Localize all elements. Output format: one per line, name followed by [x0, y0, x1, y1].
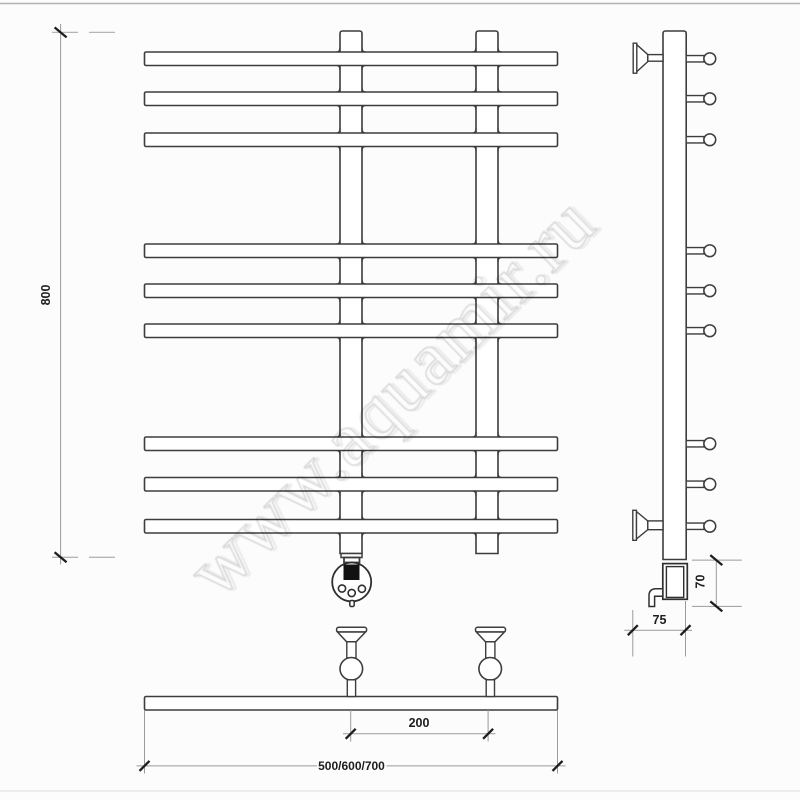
svg-text:800: 800 — [39, 285, 53, 306]
svg-text:200: 200 — [409, 716, 430, 730]
svg-text:500/600/700: 500/600/700 — [318, 759, 385, 773]
svg-text:70: 70 — [694, 575, 708, 589]
svg-text:75: 75 — [653, 613, 667, 627]
